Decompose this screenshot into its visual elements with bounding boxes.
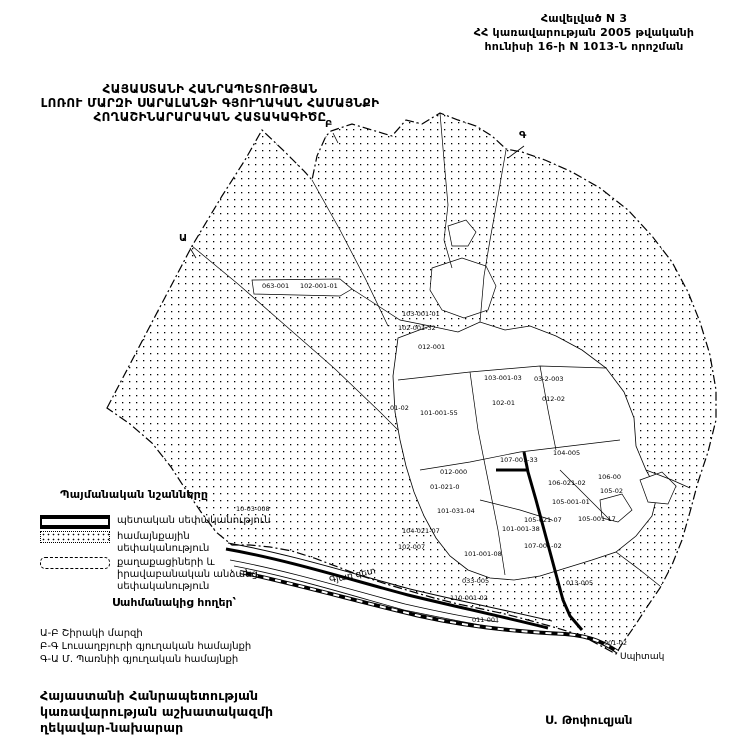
parcel-code-label: 013-005 bbox=[566, 579, 593, 587]
parcel-code-label: 107-001-02 bbox=[524, 542, 562, 550]
parcel-code-label: 103-001-01 bbox=[402, 310, 440, 318]
parcel-code-label: 01-021-0 bbox=[430, 483, 460, 491]
legend-item-label: համայնքային սեփականություն bbox=[117, 531, 282, 555]
parcel-code-label: 106-021-02 bbox=[548, 479, 586, 487]
parcel-code-label: 103-001-03 bbox=[484, 374, 522, 382]
annex-number: Հավելված N 3 bbox=[436, 12, 732, 26]
boundary-letter: Գ bbox=[519, 130, 527, 141]
parcel-code-label: 105-001-17 bbox=[578, 515, 616, 523]
bordering-lands: Սահմանակից հողեր՝ Ա-Բ Շիրակի մարզի Բ-Գ Լ… bbox=[40, 596, 320, 666]
parcel-code-label: 063-001 bbox=[262, 282, 289, 290]
bordering-lands-heading: Սահմանակից հողեր՝ bbox=[112, 596, 320, 609]
parcel-code-label: 012-02 bbox=[542, 395, 565, 403]
signatory-line1: Հայաստանի Հանրապետության bbox=[40, 688, 273, 704]
parcel-code-label: 101-001-08 bbox=[464, 550, 502, 558]
parcel-code-label: 033-005 bbox=[462, 577, 489, 585]
parcel-code-label: 105-021-07 bbox=[524, 516, 562, 524]
signatory-title-block: Հայաստանի Հանրապետության կառավարության ա… bbox=[40, 688, 273, 736]
boundary-letter: Ա bbox=[179, 233, 187, 244]
title-line3: ՀՈՂԱՇԻՆԱՐԱՐԱԿԱՆ ՀԱՏԱԿԱԳԻԾԸ bbox=[30, 110, 390, 124]
signature-name: Ս. Թոփուզյան bbox=[545, 713, 632, 727]
parcel-code-label: 03-2-003 bbox=[534, 375, 564, 383]
parcel-code-label: 012-001 bbox=[418, 343, 445, 351]
parcel-code-label: 101-001-38 bbox=[502, 525, 540, 533]
page-title: ՀԱՅԱՍՏԱՆԻ ՀԱՆՐԱՊԵՏՈՒԹՅԱՆ ԼՈՌՈՒ ՄԱՐԶԻ ՍԱՐ… bbox=[30, 82, 390, 124]
parcel-code-label: 001-02 bbox=[604, 639, 627, 647]
private-ownership-swatch bbox=[40, 557, 110, 569]
legend-item-label: քաղաքացիների և իրավաբանական անձանց սեփակ… bbox=[117, 557, 282, 593]
legend-item-state: պետական սեփականություն bbox=[40, 515, 290, 529]
legend-heading: Պայմանական նշանները bbox=[60, 488, 290, 501]
border-segment-bg: Բ-Գ Լուսաղբյուրի գյուղական համայնքի bbox=[40, 640, 320, 653]
signatory-line2: կառավարության աշխատակազմի bbox=[40, 704, 273, 720]
border-segment-ga: Գ-Ա Մ. Պառնիի գյուղական համայնքի bbox=[40, 653, 320, 666]
signatory-line3: ղեկավար-նախարար bbox=[40, 720, 273, 736]
legend: Պայմանական նշանները պետական սեփականությո… bbox=[40, 488, 290, 595]
parcel-code-label: 104-021-07 bbox=[402, 527, 440, 535]
parcel-code-label: 105-02 bbox=[600, 487, 623, 495]
place-label: Սպիտակ bbox=[620, 652, 664, 662]
parcel-code-label: 105-001-01 bbox=[552, 498, 590, 506]
parcel-code-label: 01-02 bbox=[390, 404, 409, 412]
parcel-code-label: 101-001-55 bbox=[420, 409, 458, 417]
parcel-code-label: 110-001-02 bbox=[450, 594, 488, 602]
state-ownership-swatch bbox=[40, 515, 110, 529]
parcel-code-label: 012-000 bbox=[440, 468, 467, 476]
parcel-code-label: 101-031-04 bbox=[437, 507, 475, 515]
legend-item-label: պետական սեփականություն bbox=[117, 515, 271, 527]
annex-header: Հավելված N 3 ՀՀ կառավարության 2005 թվակա… bbox=[436, 12, 732, 54]
decision-line1: ՀՀ կառավարության 2005 թվականի bbox=[436, 26, 732, 40]
parcel-code-label: 107-001-33 bbox=[500, 456, 538, 464]
title-line2: ԼՈՌՈՒ ՄԱՐԶԻ ՍԱՐԱԼԱՆՋԻ ԳՅՈՒՂԱԿԱՆ ՀԱՄԱՅՆՔԻ bbox=[30, 96, 390, 110]
parcel-code-label: 102-007 bbox=[398, 543, 425, 551]
legend-item-private: քաղաքացիների և իրավաբանական անձանց սեփակ… bbox=[40, 557, 290, 593]
title-line1: ՀԱՅԱՍՏԱՆԻ ՀԱՆՐԱՊԵՏՈՒԹՅԱՆ bbox=[30, 82, 390, 96]
legend-item-community: համայնքային սեփականություն bbox=[40, 531, 290, 555]
parcel-code-label: 102-001-01 bbox=[300, 282, 338, 290]
community-ownership-swatch bbox=[40, 531, 110, 543]
parcel-code-label: 106-00 bbox=[598, 473, 621, 481]
decision-line2: հունիսի 16-ի N 1013-Ն որոշման bbox=[436, 40, 732, 54]
parcel-code-label: 102-01 bbox=[492, 399, 515, 407]
parcel-code-label: 011-001 bbox=[472, 616, 499, 624]
border-segment-ab: Ա-Բ Շիրակի մարզի bbox=[40, 627, 320, 640]
parcel-code-label: 102-001-32 bbox=[398, 324, 436, 332]
parcel-code-label: 104-005 bbox=[553, 449, 580, 457]
